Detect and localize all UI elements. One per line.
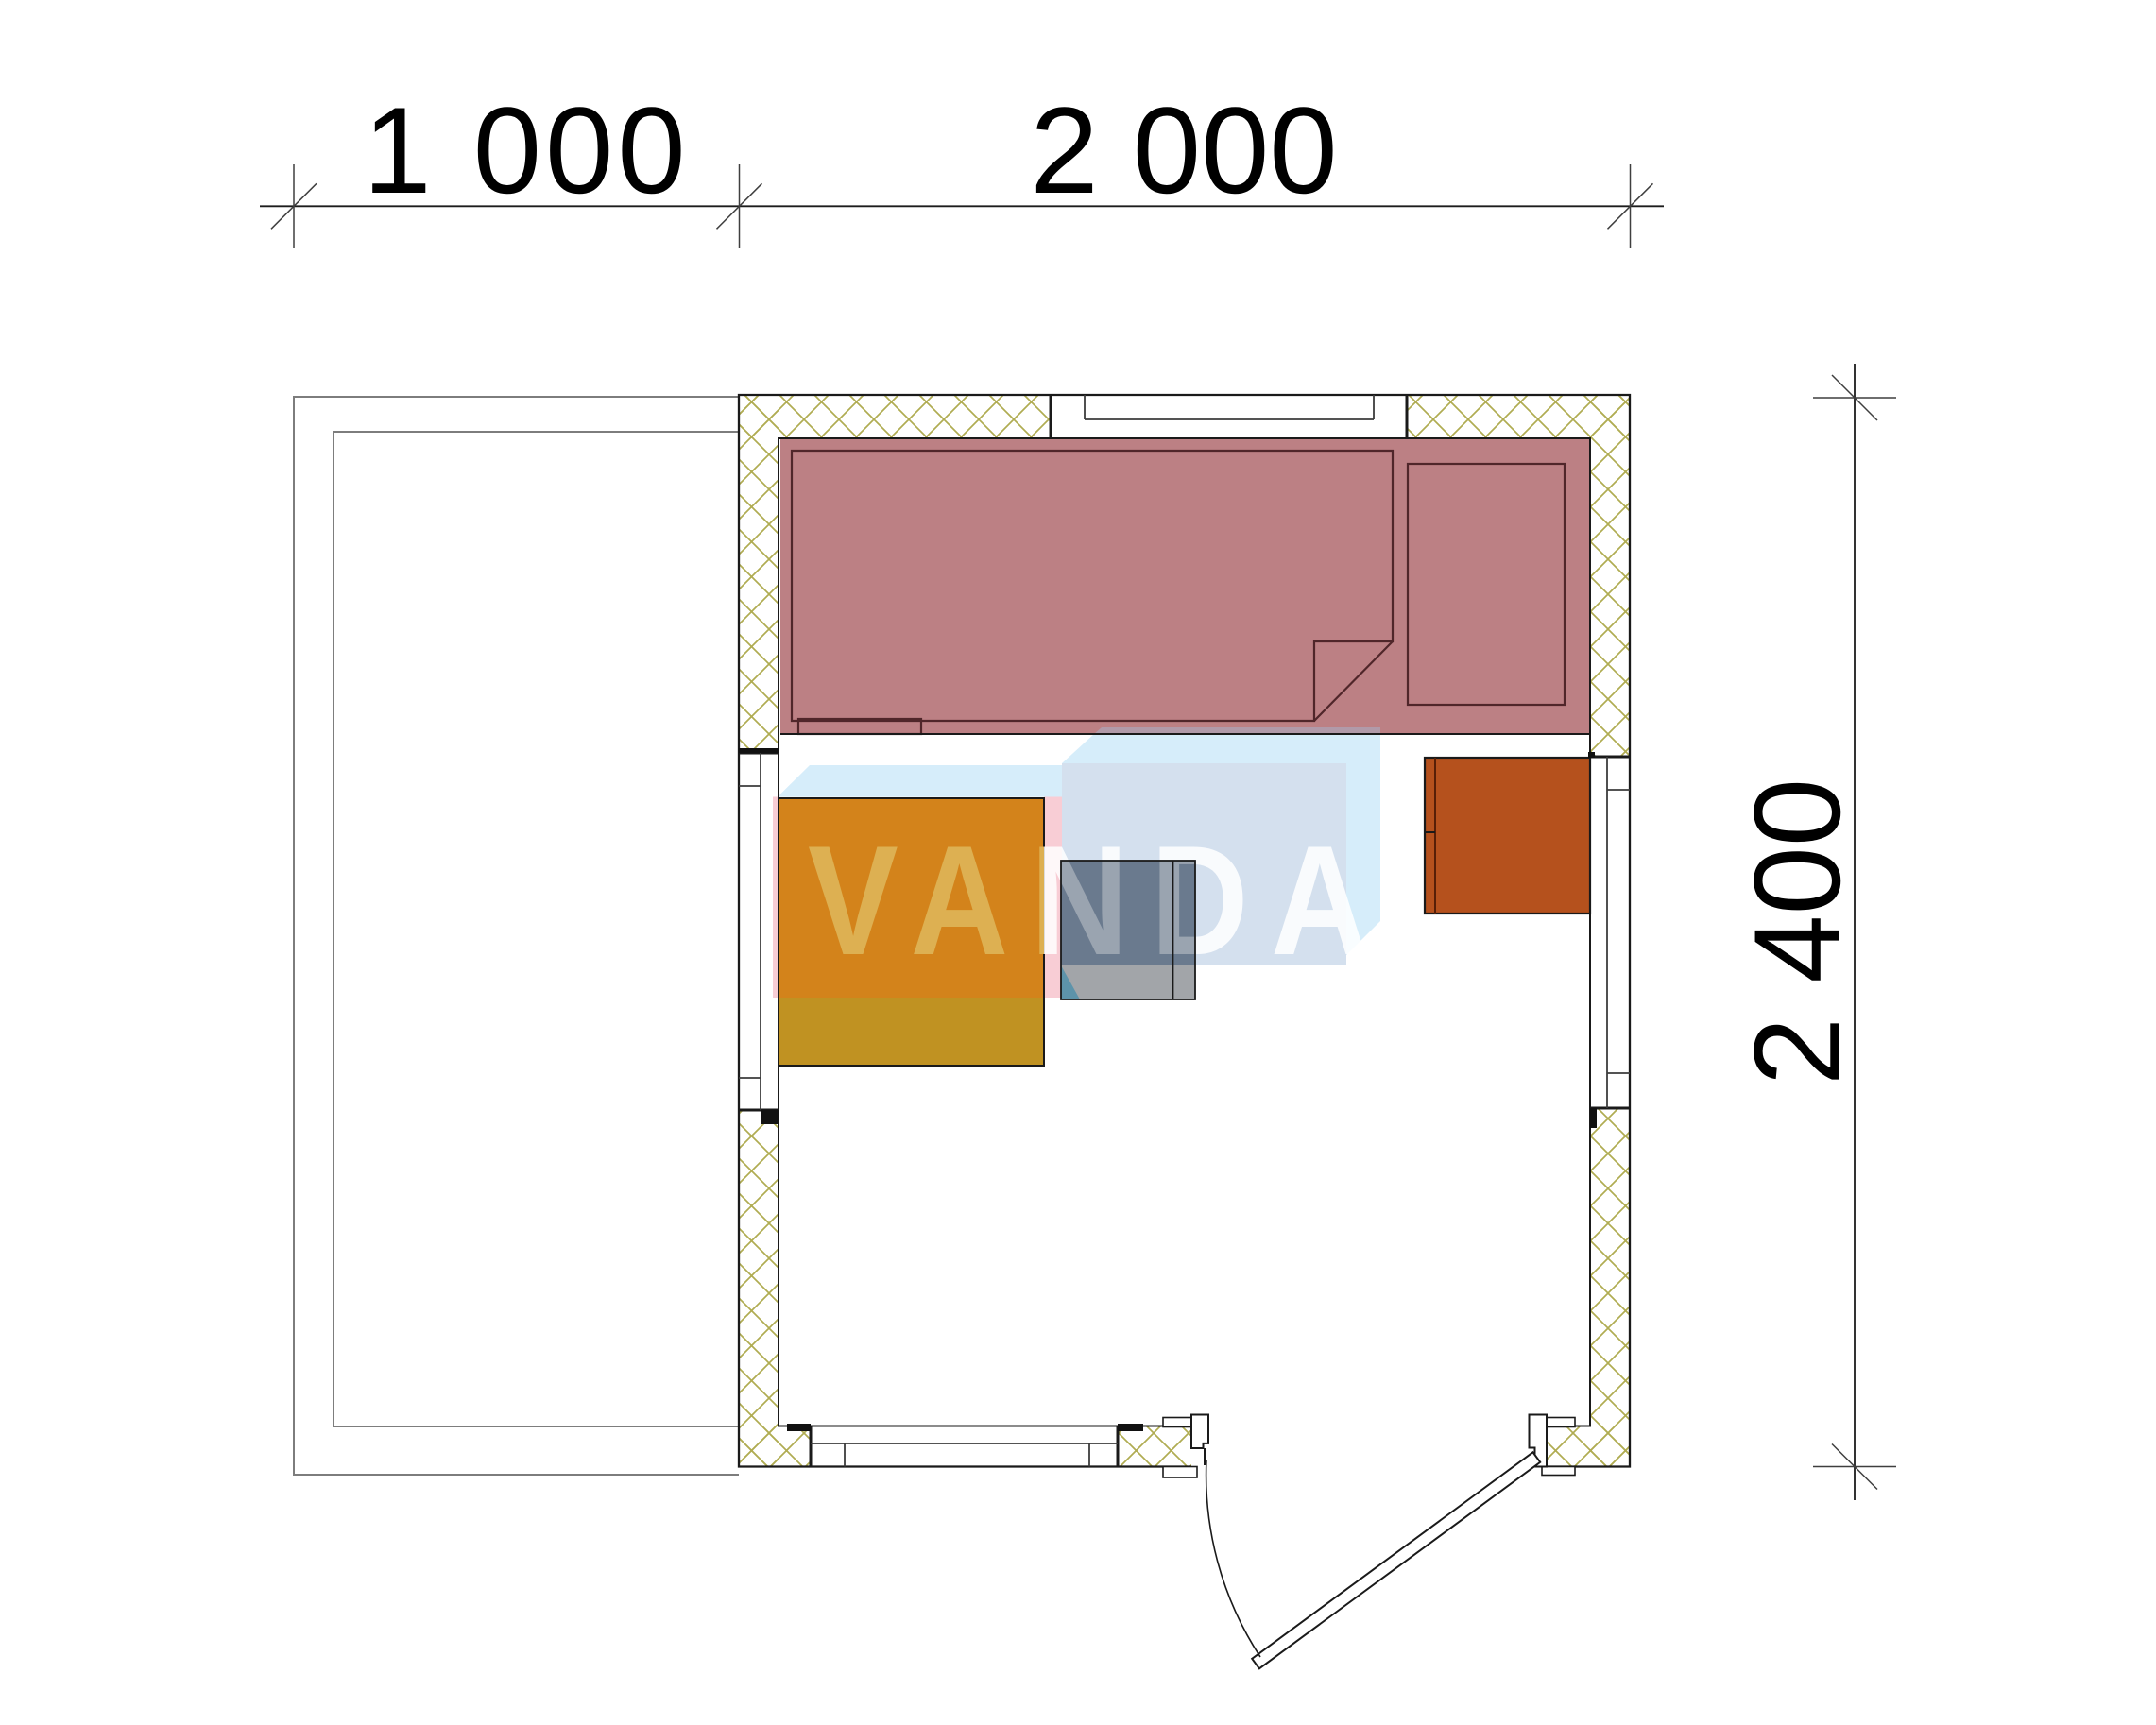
svg-text:2 000: 2 000 [1030,81,1337,219]
svg-text:2 400: 2 400 [1728,778,1866,1085]
svg-text:1 000: 1 000 [363,81,689,219]
